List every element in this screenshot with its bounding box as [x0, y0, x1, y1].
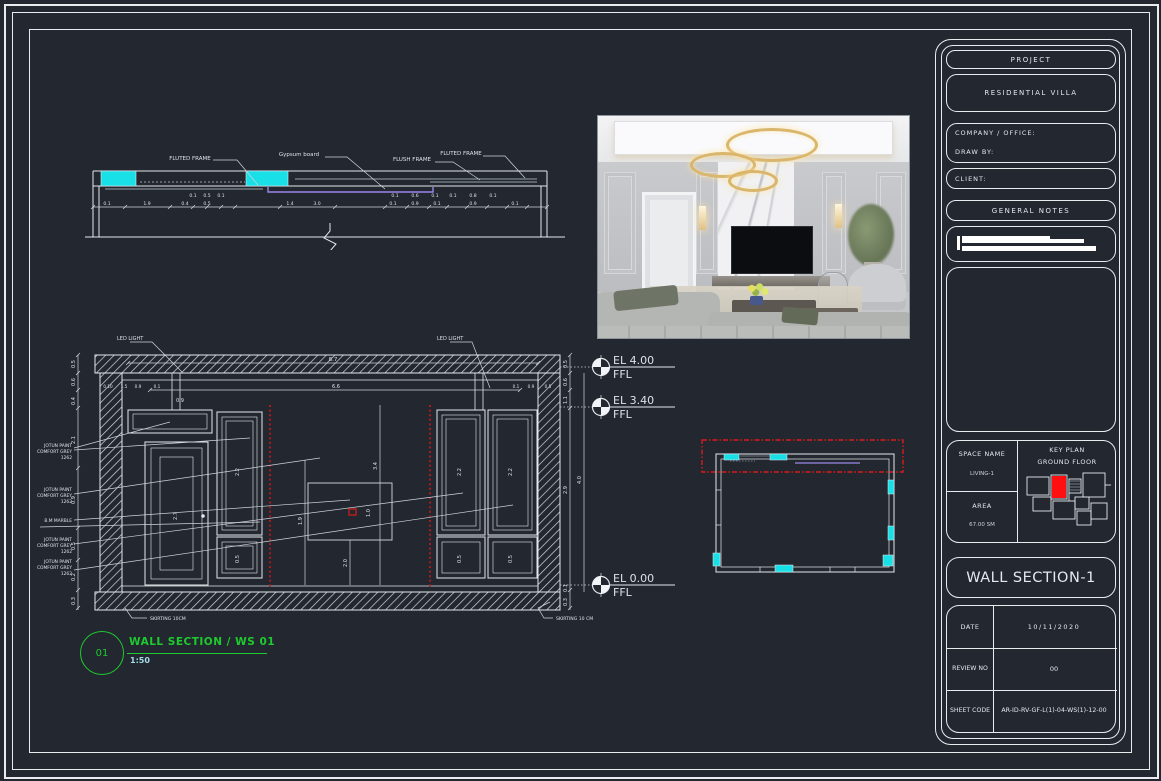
render-door	[642, 192, 696, 294]
marble-note: B.M MARBLE	[44, 518, 72, 524]
room-plan-drawing	[700, 430, 905, 580]
svg-text:0.5: 0.5	[203, 193, 210, 199]
svg-text:8.7: 8.7	[329, 357, 338, 363]
svg-text:0.5: 0.5	[545, 384, 552, 389]
svg-text:0.9: 0.9	[469, 201, 476, 207]
svg-text:1.1: 1.1	[563, 396, 569, 404]
svg-text:COMFORT GREY: COMFORT GREY	[37, 543, 72, 549]
level-0.00-datum: FFL	[613, 586, 633, 599]
svg-text:0.9: 0.9	[528, 384, 535, 389]
render-sconce-right	[835, 204, 842, 228]
sheet-title: WALL SECTION-1	[966, 570, 1096, 586]
svg-text:COMFORT GREY: COMFORT GREY	[37, 449, 72, 455]
area-value: 67.00 SM	[947, 522, 1017, 528]
svg-text:1.0: 1.0	[366, 509, 372, 517]
svg-text:0.6: 0.6	[411, 193, 418, 199]
render-wall-panel-left-1	[604, 172, 636, 274]
render-sofa-seat-row	[597, 326, 910, 339]
key-plan-subtitle: GROUND FLOOR	[1017, 458, 1117, 466]
svg-text:0.3: 0.3	[71, 597, 77, 605]
svg-text:0.1: 0.1	[513, 384, 520, 389]
svg-text:0.5: 0.5	[71, 542, 77, 550]
right-wall-hatch	[538, 373, 560, 592]
svg-text:0.1: 0.1	[511, 201, 518, 207]
table-divider-h1	[947, 648, 1117, 649]
svg-text:0.4: 0.4	[181, 201, 188, 207]
revision-table: DATE 10/11/2020 REVIEW NO 00 SHEET CODE …	[946, 605, 1116, 733]
detail-label-fluted-frame-1: FLUTED FRAME	[169, 156, 211, 162]
table-divider-h2	[947, 690, 1117, 691]
svg-text:0.1: 0.1	[389, 201, 396, 207]
date-label: DATE	[947, 623, 993, 631]
level-4.00-datum: FFL	[613, 368, 633, 381]
svg-text:0.2: 0.2	[71, 573, 77, 581]
cad-sheet-canvas[interactable]: FLUTED FRAME Gypsum board FLUSH FRAME FL…	[0, 0, 1161, 781]
svg-text:0.1: 0.1	[489, 193, 496, 199]
draw-by-label: DRAW BY:	[955, 148, 994, 156]
notes-empty-box	[946, 267, 1116, 432]
svg-text:0.9: 0.9	[71, 496, 77, 504]
render-wall-panel-right-1	[822, 172, 846, 274]
key-plan-title: KEY PLAN	[1017, 446, 1117, 454]
gypsum-board-profile	[268, 187, 433, 192]
level-3.40-datum: FFL	[613, 408, 633, 421]
general-notes-label: GENERAL NOTES	[992, 207, 1070, 215]
detail-label-gypsum-board: Gypsum board	[279, 152, 319, 158]
svg-text:0.10: 0.10	[103, 384, 113, 389]
svg-text:2.2: 2.2	[457, 468, 463, 476]
notes-redacted-bar-1	[962, 236, 1050, 243]
general-notes-box	[946, 226, 1116, 262]
date-value: 10/11/2020	[993, 623, 1115, 631]
interior-render-image	[597, 115, 910, 339]
svg-text:2.7: 2.7	[173, 512, 179, 520]
tv-center-marker	[349, 509, 356, 515]
svg-text:0.4: 0.4	[71, 397, 77, 405]
space-keyplan-divider-h	[947, 491, 1017, 492]
level-0.00-label: EL 0.00	[613, 572, 654, 585]
detail-label-flush-frame: FLUSH FRAME	[393, 157, 432, 163]
svg-text:0.1: 0.1	[154, 384, 161, 389]
render-chandelier-ring-small	[728, 170, 778, 192]
svg-text:0.5: 0.5	[508, 555, 514, 563]
svg-text:0.5: 0.5	[235, 555, 241, 563]
svg-text:0.1: 0.1	[563, 584, 569, 592]
sheet-title-box: WALL SECTION-1	[946, 557, 1116, 598]
svg-text:1.9: 1.9	[143, 201, 150, 207]
wall-section-drawing: EL 4.00 FFL EL 3.40 FFL EL 0.00 FFL LED …	[20, 330, 680, 630]
client-label: CLIENT:	[955, 175, 987, 183]
callout-scale: 1:50	[130, 656, 150, 665]
general-notes-header-box: GENERAL NOTES	[946, 200, 1116, 221]
section-dimension-texts: 8.7 6.6 0.10 1.5 0.9 0.1 0.1 0.9 0.5 0.5…	[71, 357, 583, 606]
company-office-label: COMPANY / OFFICE:	[955, 129, 1036, 137]
svg-text:0.5: 0.5	[457, 555, 463, 563]
svg-text:COMFORT GREY: COMFORT GREY	[37, 565, 72, 571]
svg-text:JOTUN PAINT: JOTUN PAINT	[43, 537, 72, 543]
svg-text:0.9: 0.9	[176, 398, 184, 404]
review-no-value: 00	[993, 665, 1115, 673]
finish-notes: JOTUN PAINT COMFORT GREY 1262 JOTUN PAIN…	[37, 443, 72, 577]
client-box: CLIENT:	[946, 168, 1116, 189]
callout-underline	[127, 653, 267, 654]
project-label-box: PROJECT	[946, 50, 1116, 69]
level-3.40-label: EL 3.40	[613, 394, 654, 407]
project-name: RESIDENTIAL VILLA	[984, 89, 1077, 97]
svg-text:0.6: 0.6	[563, 378, 569, 386]
svg-text:JOTUN PAINT: JOTUN PAINT	[43, 443, 72, 449]
key-plan-highlight-room	[1052, 476, 1066, 498]
render-sconce-left	[699, 206, 706, 230]
svg-text:0.1: 0.1	[391, 193, 398, 199]
svg-text:2.9: 2.9	[563, 486, 569, 494]
svg-text:0.1: 0.1	[189, 193, 196, 199]
space-keyplan-divider-v	[1017, 441, 1018, 542]
render-cushion-center	[781, 306, 818, 325]
svg-text:2.2: 2.2	[508, 468, 514, 476]
svg-text:0.9: 0.9	[135, 384, 142, 389]
svg-text:JOTUN PAINT: JOTUN PAINT	[43, 559, 72, 565]
led-light-label-right: LED LIGHT	[437, 336, 464, 342]
space-name-value: LIVING-1	[947, 471, 1017, 477]
svg-text:COMFORT GREY: COMFORT GREY	[37, 493, 72, 499]
svg-text:0.5: 0.5	[203, 201, 210, 207]
svg-text:0.9: 0.9	[411, 201, 418, 207]
svg-text:JOTUN PAINT: JOTUN PAINT	[43, 487, 72, 493]
company-box: COMPANY / OFFICE: DRAW BY:	[946, 123, 1116, 163]
callout-number: 01	[96, 648, 109, 659]
ceiling-slab-hatch	[95, 355, 560, 373]
space-name-label: SPACE NAME	[947, 450, 1017, 458]
svg-text:0.1: 0.1	[103, 201, 110, 207]
svg-text:1.4: 1.4	[286, 201, 293, 207]
led-light-label-left: LED LIGHT	[117, 336, 144, 342]
sheet-code-label: SHEET CODE	[947, 707, 993, 714]
level-4.00-label: EL 4.00	[613, 354, 654, 367]
detail-label-fluted-frame-2: FLUTED FRAME	[440, 151, 482, 157]
svg-text:0.5: 0.5	[563, 360, 569, 368]
svg-text:4.0: 4.0	[577, 476, 583, 484]
review-no-label: REVIEW NO	[947, 665, 993, 672]
svg-text:0.1: 0.1	[431, 193, 438, 199]
project-name-box: RESIDENTIAL VILLA	[946, 74, 1116, 112]
svg-text:0.3: 0.3	[563, 598, 569, 606]
space-keyplan-box: SPACE NAME LIVING-1 AREA 67.00 SM KEY PL…	[946, 440, 1116, 543]
svg-text:0.5: 0.5	[71, 360, 77, 368]
svg-text:0.8: 0.8	[469, 193, 476, 199]
svg-text:0.1: 0.1	[449, 193, 456, 199]
area-label: AREA	[947, 502, 1017, 510]
svg-text:1.9: 1.9	[298, 517, 304, 525]
svg-text:3.0: 3.0	[313, 201, 320, 207]
plan-detail-drawing: FLUTED FRAME Gypsum board FLUSH FRAME FL…	[85, 145, 565, 250]
svg-text:0.1: 0.1	[433, 201, 440, 207]
svg-text:1262: 1262	[61, 455, 72, 461]
door-handle	[202, 515, 205, 518]
notes-redacted-bar-2	[1050, 239, 1084, 243]
svg-text:3.4: 3.4	[373, 462, 379, 470]
callout-title: WALL SECTION / WS 01	[129, 636, 275, 648]
project-label: PROJECT	[1011, 56, 1052, 64]
svg-text:1.5: 1.5	[121, 384, 128, 389]
skirting-label-left: SKIRTING 10CM	[150, 616, 186, 622]
svg-text:2.2: 2.2	[235, 468, 241, 476]
notes-redacted-bar-3	[962, 246, 1096, 251]
key-plan-mini-drawing	[1025, 471, 1113, 537]
render-tv	[731, 226, 813, 274]
svg-text:0.1: 0.1	[217, 193, 224, 199]
render-plant-foliage	[848, 204, 894, 266]
svg-text:2.0: 2.0	[343, 559, 349, 567]
detail-dimension-texts: 0.1 0.5 0.1 0.1 0.6 0.1 0.1 0.8 0.1 0.1 …	[103, 193, 518, 207]
detail-column-block-1	[101, 171, 136, 186]
skirting-label-right: SKIRTING 10 CM	[556, 616, 593, 622]
floor-slab-hatch	[95, 592, 560, 610]
sheet-code-value: AR-ID-RV-GF-L(1)-04-WS(1)-12-00	[993, 707, 1115, 714]
svg-text:0.6: 0.6	[71, 378, 77, 386]
left-wall-hatch	[100, 373, 122, 592]
render-vase	[750, 296, 763, 305]
notes-redacted-tick	[957, 236, 960, 250]
panel-top-left	[128, 410, 212, 433]
detail-callout-bubble: 01	[80, 631, 124, 675]
svg-text:2.1: 2.1	[71, 436, 77, 444]
svg-text:6.6: 6.6	[332, 384, 340, 390]
